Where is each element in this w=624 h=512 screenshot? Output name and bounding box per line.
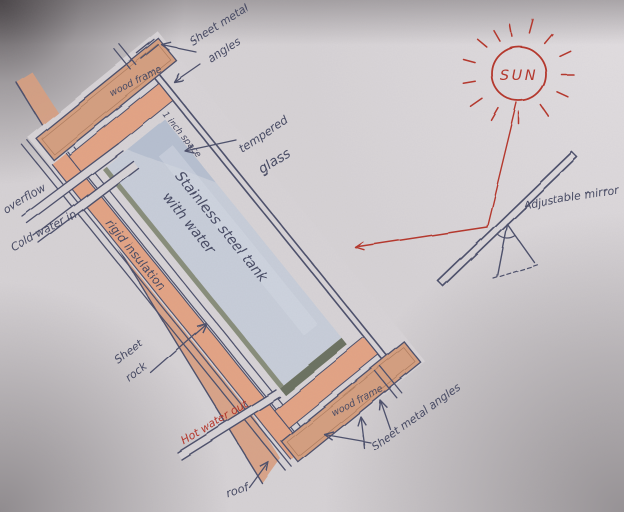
hand-drawn-solar-heater-diagram: 1 inch space Stainless steel tank with w…	[0, 0, 624, 512]
paper-grain-overlay	[0, 0, 624, 512]
